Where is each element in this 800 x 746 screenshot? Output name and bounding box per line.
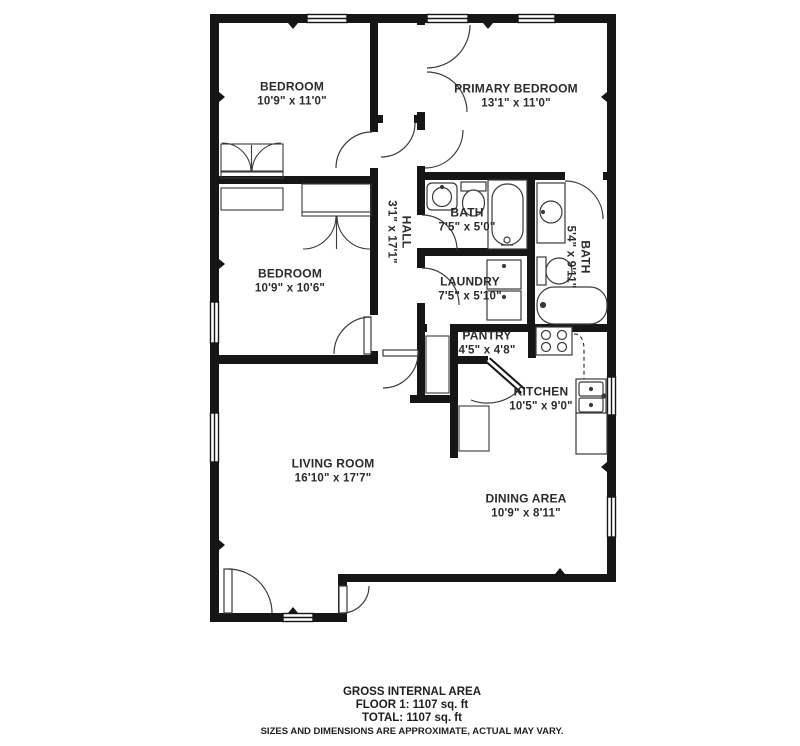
kitchen-sink-icon [576,379,606,413]
room-dims: 10'9" x 11'0" [257,94,327,108]
room-label-hall: HALL 3'1" x 17'1" [384,200,413,264]
window-bedroom1-top [307,15,347,23]
room-dims: 4'5" x 4'8" [459,343,516,357]
room-label-bath-2: BATH 5'4" x 9'11" [563,226,592,289]
door-side-entry [339,586,369,613]
window-living-bottom [283,614,313,622]
room-name: BEDROOM [255,266,325,281]
bathtub-icon [537,287,607,324]
room-dims: 10'9" x 8'11" [485,506,566,520]
room-dims: 7'5" x 5'10" [438,289,502,303]
wall-bottom-dining [338,574,616,582]
bedroom2-closet [302,184,371,249]
door-bath2-ensuite [565,181,603,219]
room-label-dining-area: DINING AREA 10'9" x 8'11" [485,491,566,520]
disclaimer-text: SIZES AND DIMENSIONS ARE APPROXIMATE, AC… [261,726,564,738]
room-label-living-room: LIVING ROOM 16'10" x 17'7" [292,456,375,485]
bedroom2-closet-left [221,188,283,210]
door-primary-entry [425,130,463,168]
total-area: TOTAL: 1107 sq. ft [261,712,564,725]
room-name: KITCHEN [509,384,573,399]
room-name: BEDROOM [257,79,327,94]
floor-plan-drawing [0,0,800,746]
room-label-pantry: PANTRY 4'5" x 4'8" [459,328,516,357]
stove-icon [536,327,572,355]
window-closet-top [427,15,468,23]
door-front-entry [224,569,272,613]
room-label-laundry: LAUNDRY 7'5" x 5'10" [438,274,502,303]
floor-plan-page: BEDROOM 10'9" x 11'0" PRIMARY BEDROOM 13… [0,0,800,746]
room-dims: 10'5" x 9'0" [509,399,573,413]
room-name: BATH [439,205,496,220]
room-label-primary-bedroom: PRIMARY BEDROOM 13'1" x 11'0" [454,81,578,110]
gross-internal-area-title: GROSS INTERNAL AREA [261,686,564,699]
bedroom1-closet [221,143,283,178]
door-bedroom1 [336,132,372,168]
floor1-area: FLOOR 1: 1107 sq. ft [261,699,564,712]
area-summary: GROSS INTERNAL AREA FLOOR 1: 1107 sq. ft… [261,686,564,738]
room-name: LIVING ROOM [292,456,375,471]
room-name: HALL [399,200,414,264]
room-name: PANTRY [459,328,516,343]
room-dims: 13'1" x 11'0" [454,96,578,110]
room-dims: 16'10" x 17'7" [292,471,375,485]
counter-cabinet [576,413,607,454]
utility-closet [459,406,489,451]
room-dims: 7'5" x 5'0" [439,220,496,234]
window-living-left [211,413,219,462]
door-primary-closet-1 [427,25,470,68]
door-bedroom2 [334,317,371,354]
room-label-bedroom-2: BEDROOM 10'9" x 10'6" [255,266,325,295]
window-bedroom2-left [211,302,219,343]
room-name: PRIMARY BEDROOM [454,81,578,96]
hall-closet [426,336,449,393]
window-dining-right [608,497,616,537]
room-label-bath-1: BATH 7'5" x 5'0" [439,205,496,234]
room-dims: 10'9" x 10'6" [255,281,325,295]
room-label-bedroom-1: BEDROOM 10'9" x 11'0" [257,79,327,108]
room-name: LAUNDRY [438,274,502,289]
room-label-kitchen: KITCHEN 10'5" x 9'0" [509,384,573,413]
window-primary-top [518,15,555,23]
room-dims: 5'4" x 9'11" [563,226,577,289]
window-kitchen-right [608,377,616,415]
door-hall-closet [381,123,415,157]
room-dims: 3'1" x 17'1" [384,200,398,264]
vanity-sink-icon [537,183,565,243]
wall-bottom-living [210,613,347,622]
door-hall-living [383,350,418,388]
room-name: BATH [578,226,593,289]
room-name: DINING AREA [485,491,566,506]
